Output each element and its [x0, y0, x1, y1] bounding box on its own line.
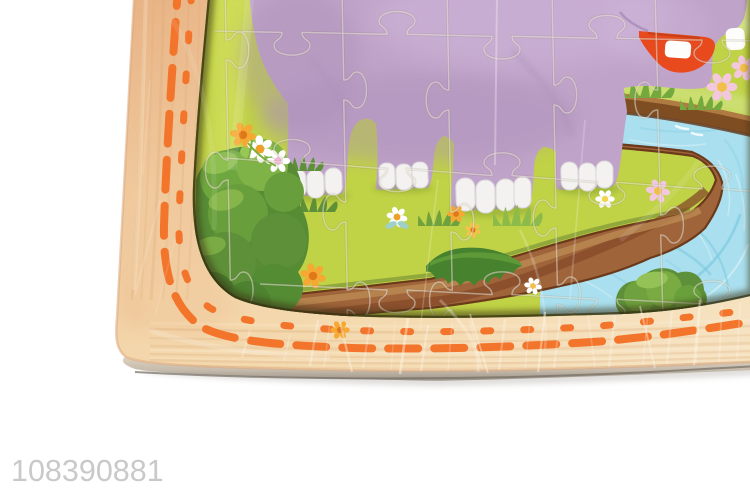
svg-text:108390881: 108390881 — [11, 454, 164, 488]
